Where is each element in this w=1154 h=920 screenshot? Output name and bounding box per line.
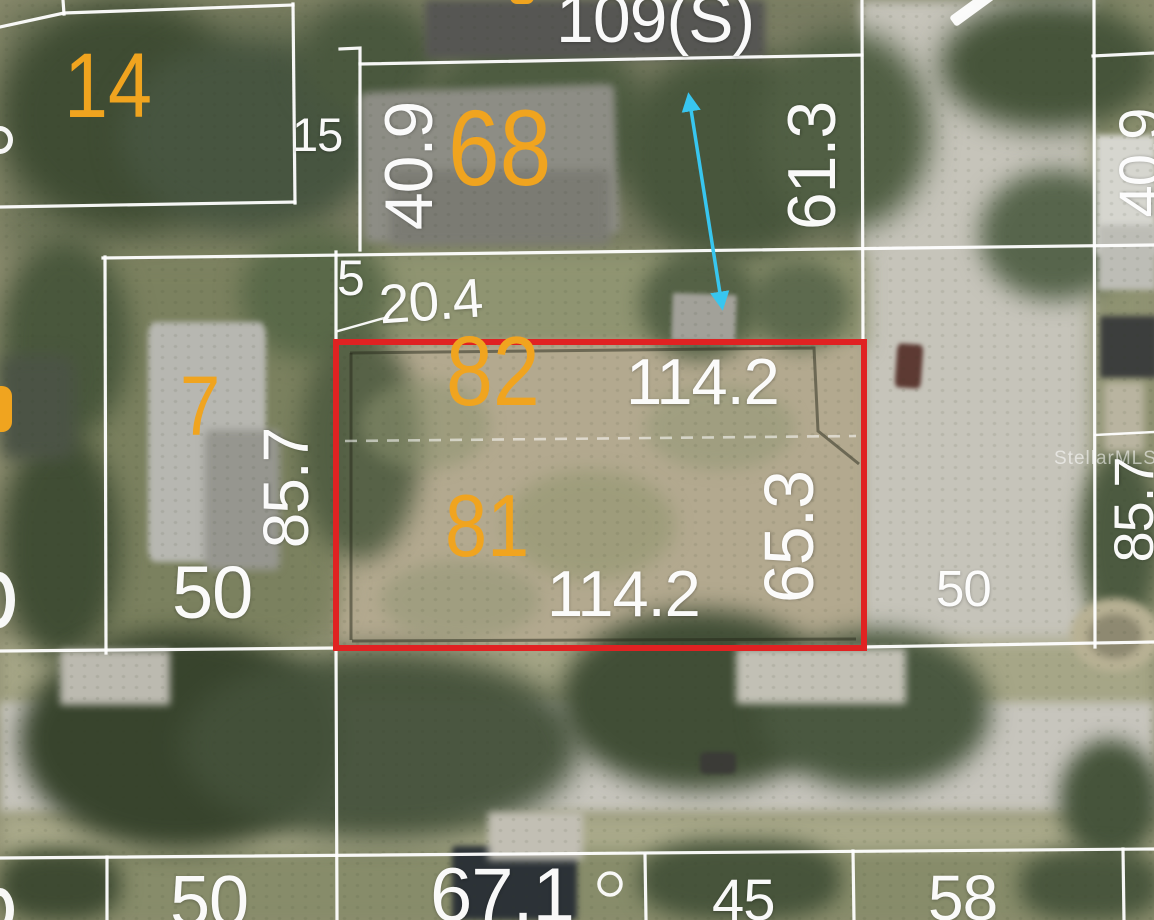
dimension-114-2-bottom: 114.2 [547, 561, 700, 626]
parcel-number-81: 81 [445, 482, 529, 570]
parcel-number-7: 7 [180, 364, 220, 448]
dimension-109s: 109(S) [556, 0, 754, 53]
parcel-number-82: 82 [446, 322, 540, 420]
dimension-61-3: 61.3 [778, 102, 846, 230]
dimension-40-9-right: 40.9 [1112, 109, 1154, 218]
dimension-65-3: 65.3 [754, 471, 824, 603]
lot-division-dashed-line [345, 436, 856, 441]
dimension-114-2-top: 114.2 [626, 349, 779, 414]
watermark: StellarMLS [1054, 448, 1154, 470]
dimension-85-7-left: 85.7 [254, 428, 318, 549]
dimension-45: 45 [712, 872, 775, 920]
survey-circle-marker [599, 873, 621, 895]
dimension-40-9-left: 40.9 [375, 102, 443, 230]
dimension-5: 5 [337, 253, 364, 303]
dimension-58: 58 [928, 866, 997, 920]
dimension-50-street: 50 [936, 563, 991, 614]
pointer-arrow [689, 97, 722, 306]
dimension-85-7-right: 85.7 [1106, 458, 1154, 563]
dimension-15: 15 [292, 111, 342, 158]
dimension-67-1: 67.1 [430, 858, 574, 920]
parcel-number-68: 68 [448, 94, 551, 202]
parcel-boundary-lines [0, 0, 1154, 920]
partial-orange-number-left [0, 386, 12, 432]
parcel-number-14: 14 [64, 40, 152, 132]
aerial-parcel-map: 14 68 7 82 81 109(S) 15 5 20.4 114.2 114… [0, 0, 1154, 920]
dimension-50-bottom: 50 [170, 866, 248, 920]
dimension-20-4: 20.4 [377, 270, 484, 332]
parcel-lines-overlay [0, 0, 1154, 920]
dimension-50-left: 50 [172, 556, 252, 630]
